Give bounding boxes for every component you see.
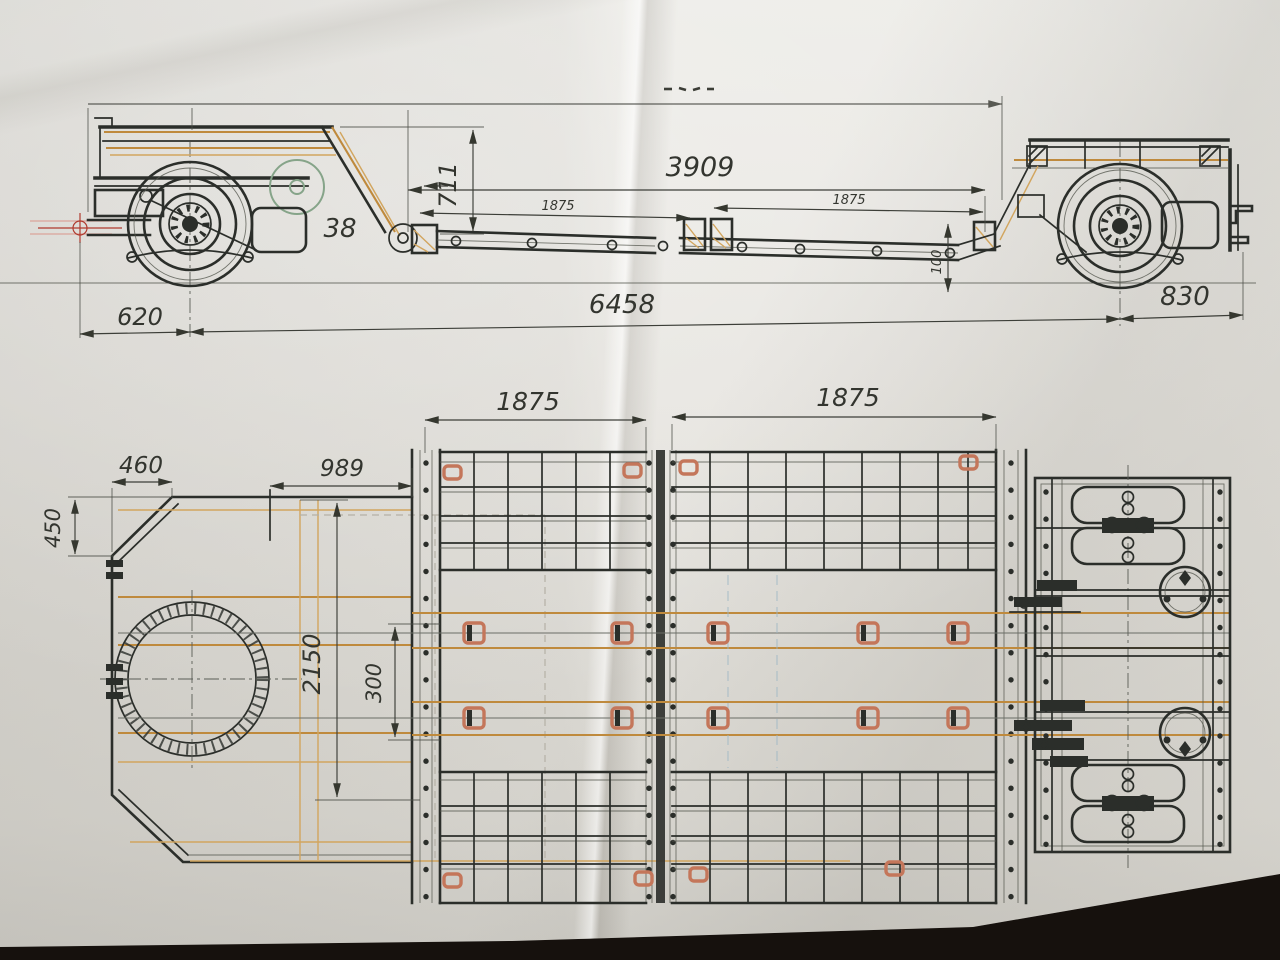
lashing-hook bbox=[680, 461, 697, 474]
hub-plan-top bbox=[1160, 567, 1210, 617]
deck-bottom-grid bbox=[440, 772, 996, 903]
front-dolly bbox=[30, 118, 400, 286]
tie-down-points bbox=[464, 623, 968, 728]
dimension-deck-right bbox=[714, 208, 983, 212]
dim-frame-spacing: 300 bbox=[362, 663, 386, 703]
dim-gooseneck-section: 989 bbox=[320, 456, 364, 482]
dim-gooseneck-height: 711 bbox=[434, 162, 462, 208]
dim-plan-deck-right: 1875 bbox=[816, 383, 880, 412]
dim-rear-overhang: 830 bbox=[1160, 282, 1210, 312]
edge-brackets bbox=[106, 560, 123, 699]
dim-deck-left: 1875 bbox=[541, 199, 574, 214]
rear-bogie bbox=[994, 140, 1252, 288]
dim-ramp-note: 38 bbox=[323, 214, 356, 244]
dim-deck-right: 1875 bbox=[832, 193, 865, 208]
dimension-830 bbox=[1120, 315, 1243, 319]
dim-platform-width: 2150 bbox=[298, 633, 326, 694]
deck-joint-strip bbox=[646, 450, 676, 903]
hub bbox=[182, 216, 198, 232]
plan-view: 1875 1875 460 989 450 2150 bbox=[41, 383, 1230, 903]
hub-plan-bottom bbox=[1160, 708, 1210, 758]
dim-total-length: 6458 bbox=[589, 290, 655, 320]
lashing-hook bbox=[444, 466, 461, 479]
dim-gooseneck-to-rear: 3909 bbox=[666, 152, 735, 183]
plan-view-dimensions: 1875 1875 460 989 450 2150 bbox=[41, 383, 996, 800]
dim-drawbar: 620 bbox=[117, 303, 163, 331]
low-deck bbox=[389, 219, 1000, 260]
lashing-hook bbox=[624, 464, 641, 477]
dimension-6458 bbox=[190, 319, 1120, 332]
lashing-hook bbox=[444, 874, 461, 887]
air-tank bbox=[1162, 202, 1218, 248]
deck-plan bbox=[118, 450, 1230, 903]
dim-plan-deck-left: 1875 bbox=[496, 387, 560, 416]
dim-front-chamfer-width: 460 bbox=[119, 453, 163, 479]
lashing-hook bbox=[690, 868, 707, 881]
dimension-obscured-value bbox=[664, 88, 714, 90]
lashing-hook bbox=[635, 872, 652, 885]
turntable-ring bbox=[100, 590, 302, 770]
rear-hook bbox=[1232, 206, 1252, 223]
dim-frame-height: 100 bbox=[930, 250, 945, 275]
bogie-plan bbox=[1010, 465, 1230, 868]
side-view: 3909 711 38 1875 1875 100 620 6458 bbox=[0, 88, 1256, 338]
hub bbox=[1112, 218, 1128, 234]
rear-hook bbox=[1232, 237, 1248, 243]
dimension-620 bbox=[80, 332, 190, 334]
trailer-technical-drawing: 3909 711 38 1875 1875 100 620 6458 bbox=[0, 0, 1280, 960]
dim-front-chamfer-height: 450 bbox=[41, 508, 65, 548]
deck-joint bbox=[684, 219, 732, 250]
deck-top-grid bbox=[440, 452, 996, 570]
bogie-brackets bbox=[1010, 580, 1088, 767]
spare-disc bbox=[270, 160, 324, 214]
